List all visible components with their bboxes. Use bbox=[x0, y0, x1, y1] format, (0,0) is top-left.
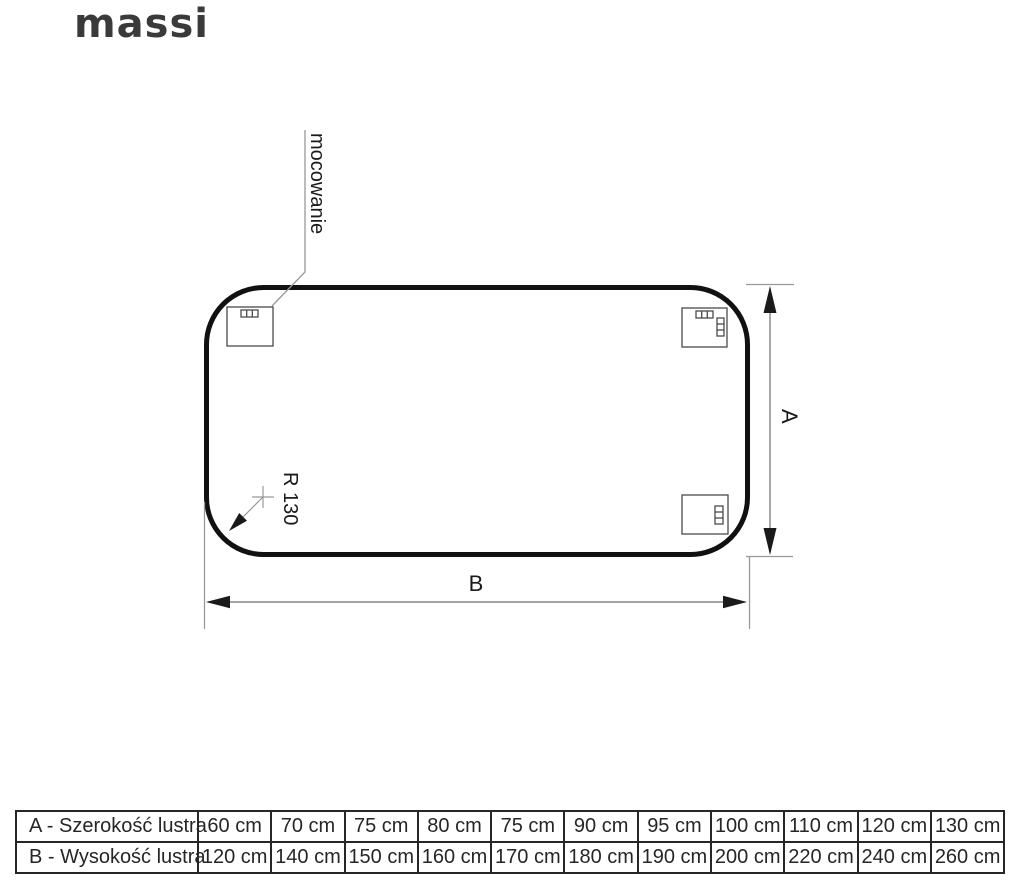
radius-label: R 130 bbox=[279, 472, 301, 525]
dim-a-arrow-up-icon bbox=[764, 286, 777, 313]
dim-a-arrow-down-icon bbox=[764, 528, 777, 555]
dimension-a: A bbox=[746, 285, 802, 557]
height-value: 260 cm bbox=[931, 842, 1004, 873]
mirror-dimension-diagram: mocowanie R 130 A bbox=[0, 0, 1020, 780]
height-value: 180 cm bbox=[564, 842, 637, 873]
bracket-slot-vertical bbox=[715, 506, 723, 524]
size-table: A - Szerokość lustra 60 cm 70 cm 75 cm 8… bbox=[15, 810, 1005, 874]
bracket-slot-horizontal bbox=[241, 310, 258, 317]
bracket-slot-horizontal bbox=[696, 311, 713, 318]
dim-b-arrow-left-icon bbox=[206, 596, 230, 608]
row-label-height: B - Wysokość lustra bbox=[16, 842, 198, 873]
width-value: 110 cm bbox=[784, 811, 857, 842]
bracket-bottom-right bbox=[682, 495, 728, 534]
width-value: 90 cm bbox=[564, 811, 637, 842]
height-value: 160 cm bbox=[418, 842, 491, 873]
dim-b-arrow-right-icon bbox=[723, 596, 747, 608]
row-label-width: A - Szerokość lustra bbox=[16, 811, 198, 842]
height-value: 170 cm bbox=[491, 842, 564, 873]
height-value: 150 cm bbox=[345, 842, 418, 873]
dim-b-label: B bbox=[469, 571, 484, 596]
height-value: 240 cm bbox=[858, 842, 931, 873]
width-value: 130 cm bbox=[931, 811, 1004, 842]
width-value: 120 cm bbox=[858, 811, 931, 842]
dim-a-label: A bbox=[777, 409, 802, 424]
table-row-width: A - Szerokość lustra 60 cm 70 cm 75 cm 8… bbox=[16, 811, 1004, 842]
width-value: 75 cm bbox=[491, 811, 564, 842]
table-row-height: B - Wysokość lustra 120 cm 140 cm 150 cm… bbox=[16, 842, 1004, 873]
height-value: 190 cm bbox=[638, 842, 711, 873]
width-value: 95 cm bbox=[638, 811, 711, 842]
width-value: 80 cm bbox=[418, 811, 491, 842]
height-value: 140 cm bbox=[271, 842, 344, 873]
height-value: 200 cm bbox=[711, 842, 784, 873]
bracket-slot-vertical bbox=[717, 318, 724, 336]
mounting-leader-line bbox=[272, 130, 305, 306]
mounting-label: mocowanie bbox=[306, 133, 328, 234]
page: { "brand": { "logo_text": "massi" }, "di… bbox=[0, 0, 1020, 887]
bracket-top-right bbox=[682, 308, 727, 347]
bracket-top-left bbox=[227, 307, 273, 346]
width-value: 75 cm bbox=[345, 811, 418, 842]
height-value: 220 cm bbox=[784, 842, 857, 873]
width-value: 60 cm bbox=[198, 811, 271, 842]
width-value: 100 cm bbox=[711, 811, 784, 842]
height-value: 120 cm bbox=[198, 842, 271, 873]
width-value: 70 cm bbox=[271, 811, 344, 842]
